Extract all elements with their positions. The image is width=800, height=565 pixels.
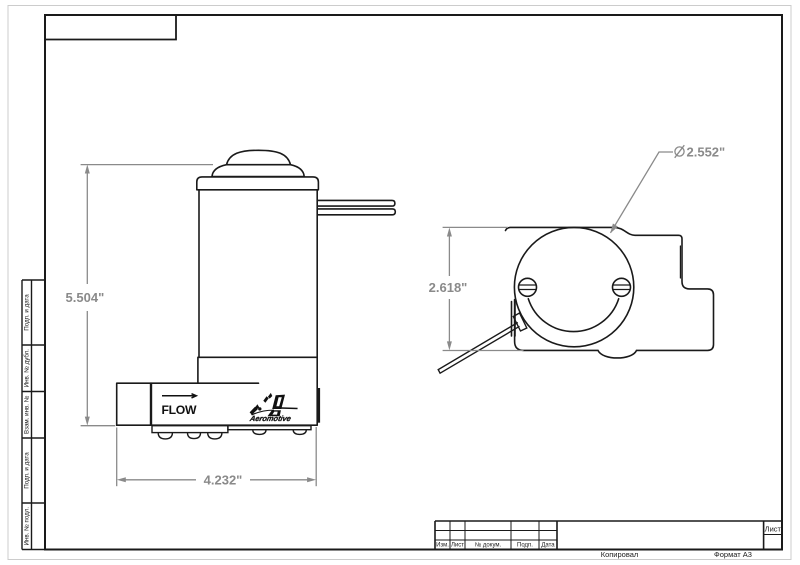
svg-text:Aeromotive: Aeromotive bbox=[248, 414, 292, 423]
svg-text:Формат А3: Формат А3 bbox=[714, 550, 752, 559]
svg-text:Лист: Лист bbox=[765, 525, 782, 534]
svg-text:2.618": 2.618" bbox=[429, 280, 468, 295]
svg-text:2.552": 2.552" bbox=[687, 144, 726, 159]
svg-text:Подп.: Подп. bbox=[517, 543, 533, 549]
svg-text:Инв. № дубл.: Инв. № дубл. bbox=[24, 349, 31, 388]
svg-text:№ докум.: № докум. bbox=[475, 542, 502, 549]
svg-text:5.504": 5.504" bbox=[66, 290, 105, 305]
svg-text:FLOW: FLOW bbox=[162, 403, 197, 417]
svg-text:Лист: Лист bbox=[451, 543, 464, 549]
svg-text:Копировал: Копировал bbox=[601, 550, 639, 559]
svg-text:Изм.: Изм. bbox=[436, 543, 449, 549]
svg-text:Взам. инв. №: Взам. инв. № bbox=[24, 395, 31, 434]
svg-text:4.232": 4.232" bbox=[204, 472, 243, 487]
svg-text:Подп. и дата: Подп. и дата bbox=[24, 294, 31, 331]
svg-text:Инв. № подл.: Инв. № подл. bbox=[24, 507, 31, 546]
svg-text:Подп. и дата: Подп. и дата bbox=[24, 452, 31, 489]
svg-text:Дата: Дата bbox=[541, 543, 555, 549]
